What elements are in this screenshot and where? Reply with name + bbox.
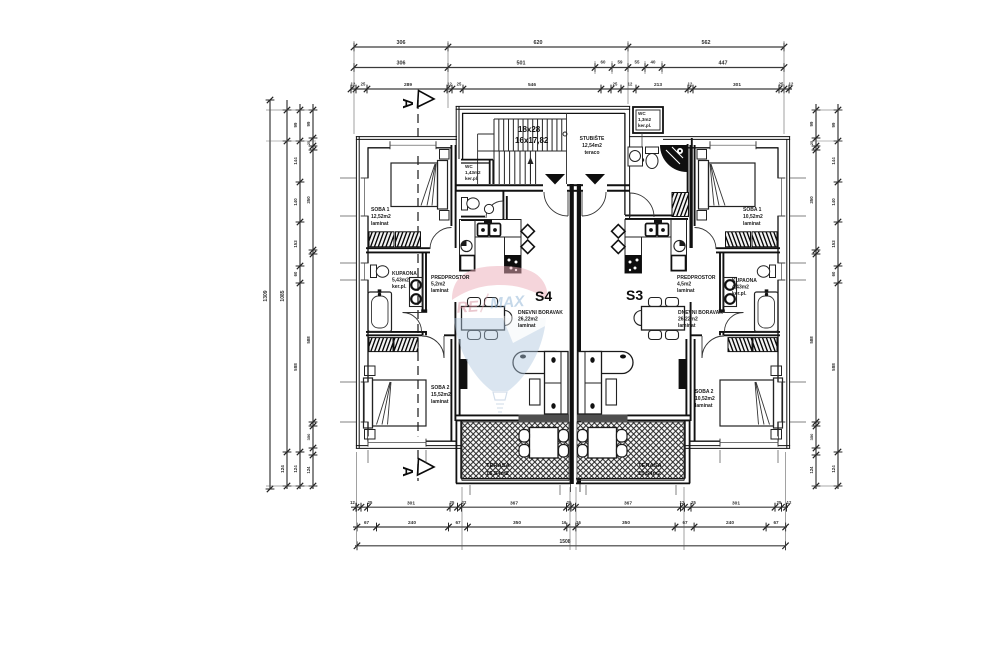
svg-text:350: 350 (513, 520, 521, 526)
svg-text:1085: 1085 (280, 290, 286, 301)
svg-text:588: 588 (809, 336, 814, 344)
svg-text:25: 25 (567, 500, 572, 505)
svg-text:4,5m2: 4,5m2 (677, 282, 691, 288)
svg-text:25: 25 (613, 82, 618, 87)
svg-text:DNEVNI BORAVAK: DNEVNI BORAVAK (678, 310, 723, 316)
svg-text:16: 16 (562, 520, 567, 525)
svg-text:laminat: laminat (678, 323, 696, 329)
svg-text:12: 12 (787, 500, 792, 505)
svg-text:301: 301 (407, 501, 415, 507)
svg-text:367: 367 (510, 501, 518, 507)
svg-text:588: 588 (831, 363, 836, 371)
svg-text:laminat: laminat (518, 323, 536, 329)
svg-text:12,52m2: 12,52m2 (371, 214, 391, 220)
svg-text:4,43m2: 4,43m2 (732, 285, 749, 291)
svg-text:S3: S3 (626, 287, 643, 303)
svg-text:12: 12 (351, 82, 356, 87)
svg-text:25: 25 (450, 500, 455, 505)
svg-text:306: 306 (397, 40, 406, 46)
svg-text:124: 124 (280, 465, 285, 473)
svg-text:447: 447 (719, 61, 728, 67)
svg-text:STUBIŠTE: STUBIŠTE (580, 134, 605, 142)
svg-text:306: 306 (397, 61, 406, 67)
svg-text:25: 25 (810, 141, 814, 145)
svg-text:59: 59 (618, 60, 623, 65)
svg-text:PREDPROSTOR: PREDPROSTOR (677, 275, 716, 281)
svg-text:67: 67 (682, 520, 688, 525)
svg-text:WC: WC (638, 111, 646, 116)
svg-text:350: 350 (622, 520, 630, 526)
svg-text:15,54m2: 15,54m2 (638, 471, 661, 477)
svg-text:A: A (399, 466, 415, 477)
svg-text:25: 25 (779, 82, 784, 87)
svg-text:laminat: laminat (431, 288, 449, 294)
svg-text:1,43m2: 1,43m2 (465, 170, 481, 175)
svg-text:22: 22 (462, 500, 467, 505)
svg-text:15,52m2: 15,52m2 (431, 392, 451, 398)
svg-text:562: 562 (702, 40, 711, 46)
svg-text:99: 99 (306, 121, 311, 126)
svg-text:25: 25 (368, 500, 373, 505)
svg-text:350: 350 (809, 433, 814, 440)
svg-text:laminat: laminat (743, 221, 761, 227)
svg-text:99: 99 (809, 121, 814, 126)
svg-text:367: 367 (624, 501, 632, 507)
svg-text:RE: RE (456, 298, 479, 317)
svg-text:KUPAONA: KUPAONA (392, 271, 417, 277)
svg-text:140: 140 (831, 198, 836, 206)
svg-text:60: 60 (831, 271, 836, 276)
svg-text:ker.pl.: ker.pl. (732, 291, 747, 297)
svg-text:144: 144 (293, 157, 298, 165)
svg-text:99: 99 (293, 122, 298, 127)
svg-text:350: 350 (809, 196, 814, 204)
svg-text:124: 124 (831, 465, 836, 473)
svg-text:10,52m2: 10,52m2 (695, 396, 715, 402)
svg-text:240: 240 (408, 520, 416, 526)
svg-text:teraco: teraco (584, 150, 599, 156)
svg-text:DNEVNI BORAVAK: DNEVNI BORAVAK (518, 310, 563, 316)
svg-text:26,22m2: 26,22m2 (518, 317, 538, 323)
svg-text:144: 144 (831, 157, 836, 165)
svg-text:A: A (399, 98, 415, 109)
svg-text:153: 153 (831, 240, 836, 248)
svg-text:ker.pl.: ker.pl. (638, 123, 651, 128)
svg-text:99: 99 (831, 122, 836, 127)
svg-text:10,52m2: 10,52m2 (743, 214, 763, 220)
svg-text:25: 25 (457, 82, 462, 87)
svg-text:TERASA: TERASA (638, 463, 663, 469)
svg-text:153: 153 (293, 240, 298, 248)
svg-text:350: 350 (306, 196, 311, 204)
svg-text:12: 12 (789, 82, 794, 87)
svg-text:KUPAONA: KUPAONA (732, 278, 757, 284)
svg-text:546: 546 (528, 82, 536, 88)
svg-text:67: 67 (455, 520, 461, 525)
svg-text:laminat: laminat (677, 288, 695, 294)
svg-text:16: 16 (576, 520, 581, 525)
svg-text:40: 40 (651, 60, 656, 65)
svg-text:620: 620 (534, 40, 543, 46)
svg-text:1,3m2: 1,3m2 (638, 117, 651, 122)
svg-text:S4: S4 (535, 288, 552, 304)
svg-text:PREDPROSTOR: PREDPROSTOR (431, 275, 470, 281)
svg-text:12: 12 (688, 82, 693, 87)
svg-text:289: 289 (404, 82, 412, 88)
svg-text:SOBA 1: SOBA 1 (371, 207, 390, 213)
svg-text:60: 60 (293, 271, 298, 276)
svg-text:SOBA 1: SOBA 1 (743, 207, 762, 213)
svg-text:15,54m2: 15,54m2 (486, 471, 509, 477)
svg-text:16x17,82: 16x17,82 (515, 136, 549, 145)
svg-text:26,22m2: 26,22m2 (678, 317, 698, 323)
svg-text:ker.pl.: ker.pl. (392, 284, 407, 290)
svg-text:18x28: 18x28 (518, 125, 541, 134)
svg-text:5,43m2: 5,43m2 (392, 278, 409, 284)
svg-text:1309: 1309 (263, 290, 269, 301)
svg-text:124: 124 (306, 466, 311, 474)
svg-text:501: 501 (517, 61, 526, 67)
svg-text:WC: WC (465, 164, 473, 169)
svg-text:67: 67 (364, 520, 370, 525)
svg-text:12: 12 (350, 500, 355, 505)
svg-text:25: 25 (307, 141, 311, 145)
svg-text:60: 60 (601, 60, 606, 65)
svg-text:5,2m2: 5,2m2 (431, 282, 445, 288)
svg-text:350: 350 (306, 433, 311, 440)
svg-text:140: 140 (293, 198, 298, 206)
svg-text:55: 55 (635, 60, 640, 65)
svg-text:588: 588 (306, 336, 311, 344)
svg-text:301: 301 (732, 501, 740, 507)
svg-text:SOBA 2: SOBA 2 (695, 389, 714, 395)
svg-text:1508: 1508 (559, 539, 570, 545)
svg-text:588: 588 (293, 363, 298, 371)
svg-text:ker.pl.: ker.pl. (465, 176, 478, 181)
svg-text:12: 12 (628, 82, 633, 87)
svg-text:laminat: laminat (431, 399, 449, 405)
svg-text:25: 25 (777, 500, 782, 505)
svg-text:SOBA 2: SOBA 2 (431, 385, 450, 391)
svg-text:301: 301 (733, 82, 741, 88)
svg-text:laminat: laminat (371, 221, 389, 227)
svg-text:25: 25 (361, 82, 366, 87)
svg-text:67: 67 (773, 520, 779, 525)
svg-text:TERASA: TERASA (486, 463, 511, 469)
svg-text:124: 124 (293, 465, 298, 473)
svg-text:25: 25 (691, 500, 696, 505)
svg-text:laminat: laminat (695, 403, 713, 409)
svg-text:12,54m2: 12,54m2 (582, 143, 602, 149)
svg-text:240: 240 (726, 520, 734, 526)
svg-text:124: 124 (809, 466, 814, 474)
svg-text:213: 213 (654, 82, 662, 88)
